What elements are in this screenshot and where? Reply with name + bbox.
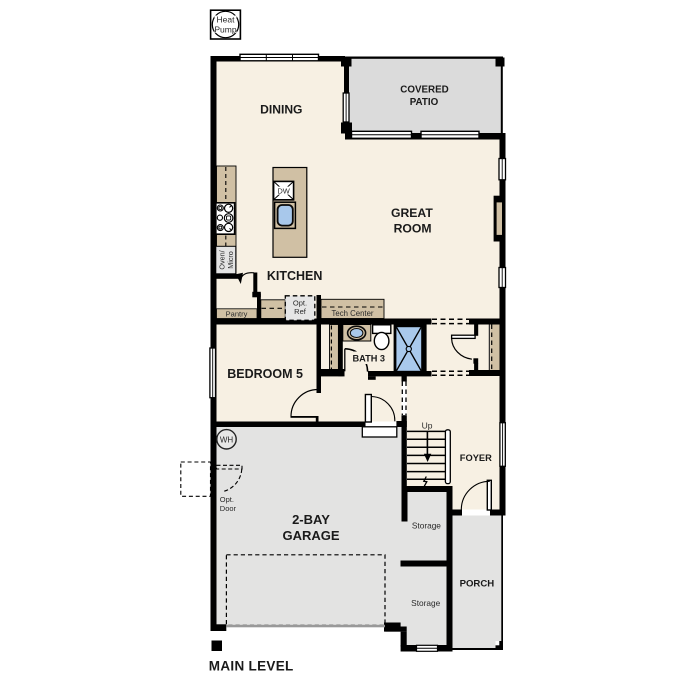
svg-text:FOYER: FOYER	[460, 453, 492, 463]
svg-text:Door: Door	[220, 504, 237, 513]
svg-text:Pantry: Pantry	[226, 310, 248, 319]
svg-text:Tech Center: Tech Center	[331, 309, 373, 318]
svg-text:Pump: Pump	[214, 24, 236, 34]
svg-text:WH: WH	[220, 435, 234, 444]
svg-text:BEDROOM 5: BEDROOM 5	[227, 367, 303, 381]
svg-text:GREAT: GREAT	[391, 206, 433, 220]
svg-text:Storage: Storage	[411, 598, 440, 608]
svg-text:Ref: Ref	[294, 307, 307, 316]
svg-text:KITCHEN: KITCHEN	[267, 269, 323, 283]
svg-text:PORCH: PORCH	[460, 578, 495, 589]
svg-text:Opt.: Opt.	[220, 495, 234, 504]
svg-text:Up: Up	[422, 421, 433, 431]
svg-text:PATIO: PATIO	[410, 97, 439, 108]
svg-text:ROOM: ROOM	[394, 222, 432, 236]
svg-text:2-BAY: 2-BAY	[292, 512, 330, 527]
svg-text:DW: DW	[277, 187, 290, 196]
svg-text:Storage: Storage	[412, 521, 441, 531]
svg-text:Micro: Micro	[226, 251, 235, 269]
svg-text:MAIN LEVEL: MAIN LEVEL	[209, 659, 294, 674]
svg-text:COVERED: COVERED	[400, 84, 448, 95]
svg-text:DINING: DINING	[260, 103, 302, 117]
svg-text:GARAGE: GARAGE	[282, 528, 339, 543]
svg-text:Heat: Heat	[217, 14, 236, 24]
svg-text:BATH 3: BATH 3	[353, 353, 386, 363]
